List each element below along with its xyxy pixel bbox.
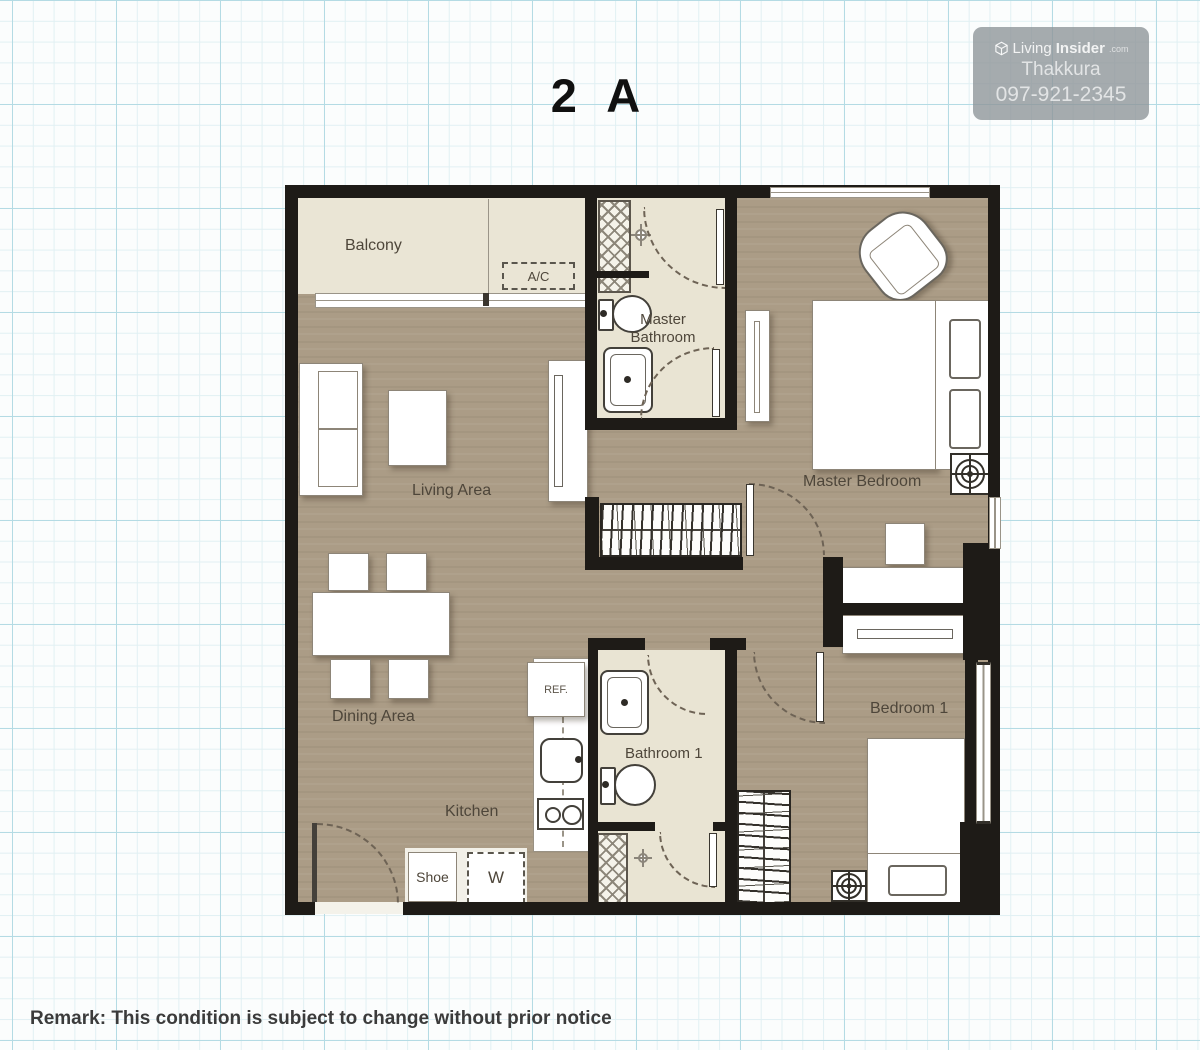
kitchen-sink [540, 738, 583, 783]
remark-text: Remark: This condition is subject to cha… [30, 1008, 612, 1030]
master-shower [598, 200, 631, 293]
washer-label: W [488, 868, 504, 888]
watermark-phone: 097-921-2345 [996, 83, 1127, 107]
brand-insider: Insider [1056, 40, 1105, 57]
stove-burner-small [545, 807, 561, 823]
master-bathroom-label: Master Bathroom [617, 311, 709, 347]
bathroom1-basin-drain [621, 699, 628, 706]
sofa [299, 363, 363, 496]
wall [725, 638, 737, 902]
master-toilet-dot [600, 310, 607, 317]
brand-living: Living [1013, 40, 1052, 57]
wall [285, 185, 298, 902]
ac-unit-box: A/C [502, 262, 575, 290]
dining-chair [386, 553, 427, 591]
bedroom1-label: Bedroom 1 [870, 700, 948, 718]
floor-plan: A/C REF. Sho [285, 185, 1000, 915]
bathroom1-toilet-dot [602, 781, 609, 788]
watermark-brand: LivingInsider.com [994, 40, 1129, 57]
dining-chair [388, 659, 429, 699]
dining-table [312, 592, 450, 656]
wall [588, 638, 598, 902]
window [989, 497, 1001, 549]
dining-chair [328, 553, 369, 591]
shoe-cabinet-label: Shoe [416, 868, 449, 886]
livinginsider-cube-icon [994, 41, 1009, 56]
wall [725, 198, 737, 430]
floor-plan-page: 2 A LivingInsider.com Thakkura 097-921-2… [0, 0, 1200, 1050]
stove-burner-large [562, 805, 582, 825]
wall [598, 638, 645, 650]
dining-area-label: Dining Area [332, 708, 415, 726]
refrigerator-label: REF. [544, 681, 568, 699]
brand-tld: .com [1109, 44, 1129, 54]
coffee-table [388, 390, 447, 466]
sliding-door-post [483, 293, 489, 306]
shower-room-door-leaf [709, 833, 717, 887]
wall [963, 543, 1000, 660]
bathroom1-basin [600, 670, 649, 735]
entrance-door-leaf [312, 823, 317, 902]
bathroom1-shower [597, 833, 628, 907]
master-bed-pillow [949, 319, 981, 379]
wall [403, 902, 1000, 915]
shoe-cabinet: Shoe [408, 852, 457, 902]
sofa-cushions [318, 371, 358, 487]
bathroom1-faucet-icon [633, 848, 653, 873]
tv-panel [554, 375, 563, 487]
bedroom1-wardrobe [737, 790, 791, 904]
master-bathroom-door-leaf [716, 209, 724, 285]
tv-console [548, 360, 588, 502]
watermark-agent-name: Thakkura [1021, 59, 1100, 81]
hall-shelf [600, 503, 742, 557]
bedroom1-bed-head [867, 853, 965, 904]
master-bed-head [935, 300, 990, 470]
wall [585, 557, 743, 570]
watermark-badge: LivingInsider.com Thakkura 097-921-2345 [973, 27, 1149, 120]
desk-chair [885, 523, 925, 565]
bedroom1-bed-mattress [867, 738, 965, 855]
master-wardrobe-line [754, 321, 760, 413]
wall [285, 902, 315, 915]
window [770, 187, 930, 198]
wall [585, 198, 597, 418]
master-bed-mattress [812, 300, 937, 470]
master-basin-drain [624, 376, 631, 383]
bedroom1-door-leaf [816, 652, 824, 722]
balcony-sliding-door [315, 293, 587, 308]
bathroom1-label: Bathroom 1 [625, 745, 703, 763]
wall [737, 638, 746, 650]
balcony-label: Balcony [345, 237, 402, 255]
stove [537, 798, 584, 830]
master-ceiling-fixture-icon [950, 453, 990, 500]
unit-title: 2 A [480, 68, 720, 123]
wall [823, 557, 843, 647]
desk [842, 567, 967, 605]
master-bathroom-door2-leaf [712, 349, 720, 417]
wall [960, 822, 1000, 915]
kitchen-label: Kitchen [445, 803, 498, 821]
kitchen-sink-faucet [575, 756, 582, 763]
wall [713, 822, 725, 831]
wall [585, 418, 737, 430]
ac-unit-label: A/C [528, 269, 550, 284]
window [976, 662, 991, 824]
master-bedroom-label: Master Bedroom [803, 473, 921, 491]
master-bed-pillow [949, 389, 981, 449]
refrigerator-box: REF. [527, 662, 585, 717]
washer-box: W [467, 852, 525, 904]
living-area-label: Living Area [412, 482, 491, 500]
bedroom1-pillow [888, 865, 947, 896]
dining-chair [330, 659, 371, 699]
bedroom1-console-handle [857, 629, 953, 639]
wall [838, 603, 968, 615]
wall [597, 271, 649, 278]
wall [598, 822, 655, 831]
bedroom1-console [842, 615, 967, 654]
master-bedroom-door-leaf [746, 484, 754, 556]
bathroom1-toilet-bowl [614, 764, 656, 806]
balcony-divider [488, 199, 489, 293]
master-wardrobe-panel [745, 310, 770, 422]
